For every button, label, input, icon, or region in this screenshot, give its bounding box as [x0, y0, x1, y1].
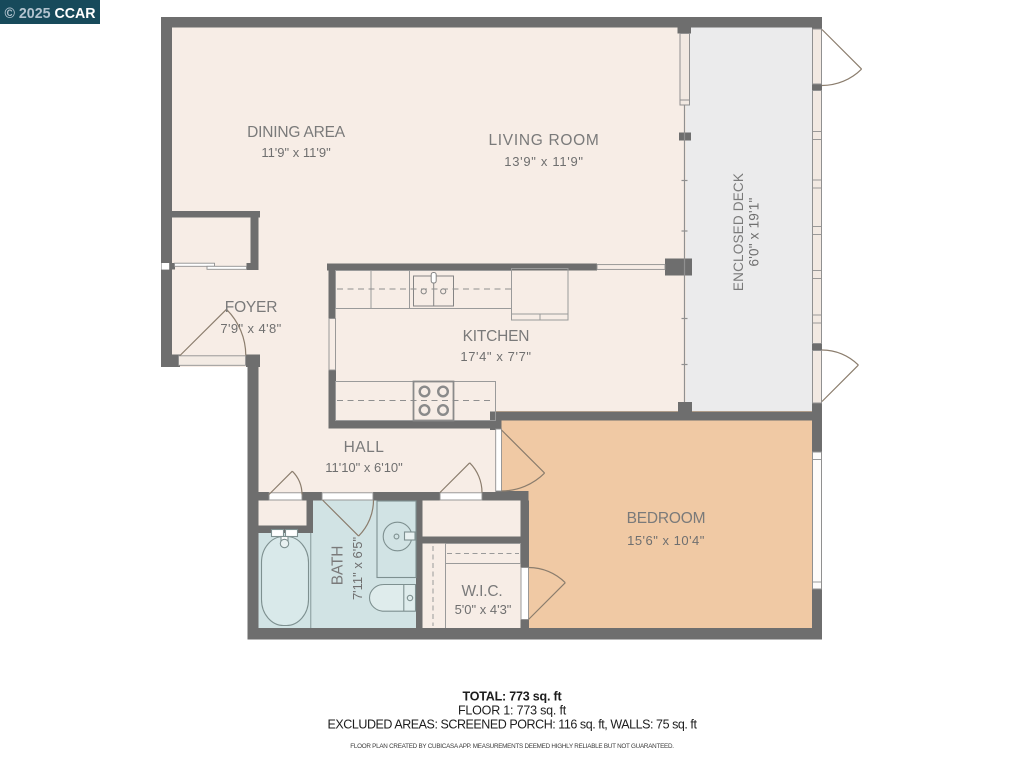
svg-text:DINING AREA: DINING AREA — [247, 124, 346, 141]
svg-text:7'11" x 6'5": 7'11" x 6'5" — [350, 537, 365, 600]
svg-text:LIVING ROOM: LIVING ROOM — [488, 132, 599, 149]
svg-text:W.I.C.: W.I.C. — [462, 583, 503, 600]
svg-text:KITCHEN: KITCHEN — [463, 328, 530, 345]
svg-text:6'0" x 19'1": 6'0" x 19'1" — [747, 198, 762, 267]
svg-text:BEDROOM: BEDROOM — [627, 510, 706, 527]
svg-text:EXCLUDED AREAS: SCREENED PORCH: EXCLUDED AREAS: SCREENED PORCH: 116 sq. … — [328, 718, 698, 732]
svg-text:11'10" x 6'10": 11'10" x 6'10" — [325, 460, 403, 475]
svg-text:FOYER: FOYER — [225, 299, 277, 316]
svg-text:15'6" x 10'4": 15'6" x 10'4" — [627, 533, 705, 548]
svg-text:5'0" x 4'3": 5'0" x 4'3" — [455, 602, 512, 617]
svg-text:© 2025 CCAR: © 2025 CCAR — [5, 5, 96, 22]
svg-text:TOTAL: 773 sq. ft: TOTAL: 773 sq. ft — [463, 690, 563, 704]
svg-text:17'4" x 7'7": 17'4" x 7'7" — [460, 349, 531, 364]
svg-text:FLOOR 1: 773 sq. ft: FLOOR 1: 773 sq. ft — [458, 704, 567, 718]
svg-text:13'9" x 11'9": 13'9" x 11'9" — [504, 154, 583, 169]
svg-text:11'9" x 11'9": 11'9" x 11'9" — [261, 145, 331, 160]
svg-text:BATH: BATH — [330, 546, 347, 585]
svg-text:ENCLOSED DECK: ENCLOSED DECK — [731, 173, 746, 291]
svg-text:FLOOR PLAN CREATED BY CUBICASA: FLOOR PLAN CREATED BY CUBICASA APP. MEAS… — [350, 743, 674, 750]
svg-text:7'9" x 4'8": 7'9" x 4'8" — [220, 321, 281, 336]
svg-text:HALL: HALL — [344, 439, 385, 456]
